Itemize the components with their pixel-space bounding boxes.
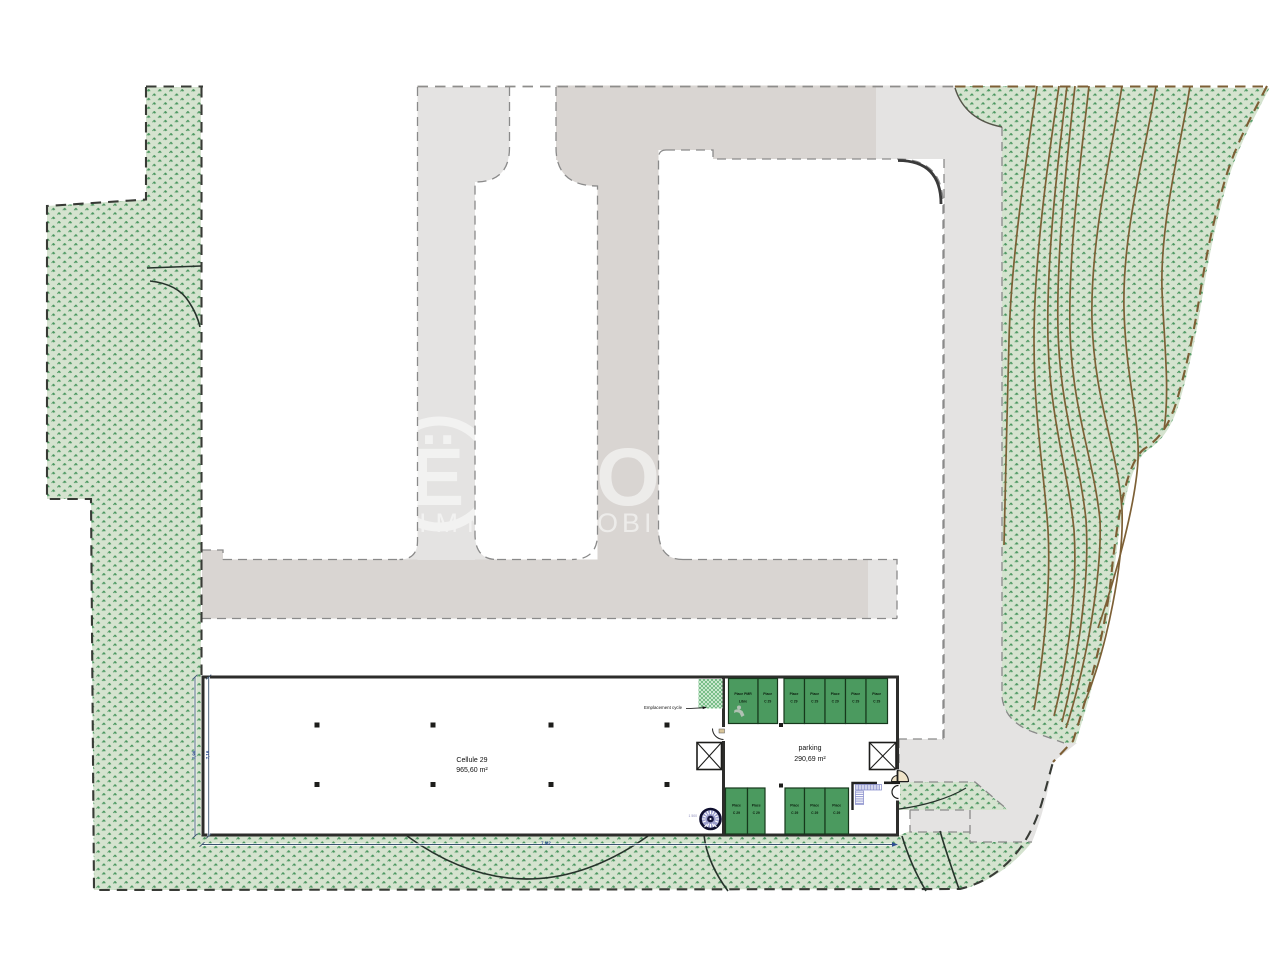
svg-text:7,16: 7,16: [205, 750, 210, 759]
svg-text:Place: Place: [831, 692, 840, 696]
svg-text:C 29: C 29: [832, 699, 839, 703]
svg-text:Place: Place: [763, 692, 772, 696]
svg-text:C 29: C 29: [852, 699, 859, 703]
svg-text:C 29: C 29: [753, 811, 760, 815]
svg-text:7,96: 7,96: [192, 750, 197, 759]
svg-text:Cellule 29: Cellule 29: [456, 757, 487, 764]
svg-text:OBIL: OBIL: [597, 508, 675, 538]
svg-text:965,60 m²: 965,60 m²: [456, 767, 488, 774]
svg-text:C 29: C 29: [873, 699, 880, 703]
svg-text:C 29: C 29: [811, 811, 818, 815]
svg-text:parking: parking: [799, 745, 822, 752]
svg-text:Place: Place: [872, 692, 881, 696]
svg-text:C 29: C 29: [764, 699, 771, 703]
svg-text:Place: Place: [810, 692, 819, 696]
svg-text:C 29: C 29: [833, 811, 840, 815]
svg-text:Place: Place: [790, 692, 799, 696]
svg-text:Place: Place: [732, 804, 741, 808]
svg-text:Place: Place: [752, 804, 761, 808]
svg-text:C 29: C 29: [733, 811, 740, 815]
svg-text:Emplacement cycle: Emplacement cycle: [644, 705, 683, 710]
svg-text:Place: Place: [832, 804, 841, 808]
svg-text:C 29: C 29: [790, 699, 797, 703]
svg-text:7 M2: 7 M2: [541, 840, 551, 845]
svg-text:IMM: IMM: [419, 508, 498, 538]
svg-text:Place: Place: [810, 804, 819, 808]
svg-text:290,69 m²: 290,69 m²: [794, 756, 826, 763]
svg-text:Libre: Libre: [739, 699, 747, 703]
svg-text:V: V: [510, 432, 565, 523]
svg-text:1 500: 1 500: [689, 814, 698, 818]
svg-text:Place: Place: [851, 692, 860, 696]
svg-text:C 29: C 29: [811, 699, 818, 703]
svg-text:C 29: C 29: [791, 811, 798, 815]
svg-text:Place PMR: Place PMR: [734, 692, 752, 696]
svg-text:Place: Place: [790, 804, 799, 808]
